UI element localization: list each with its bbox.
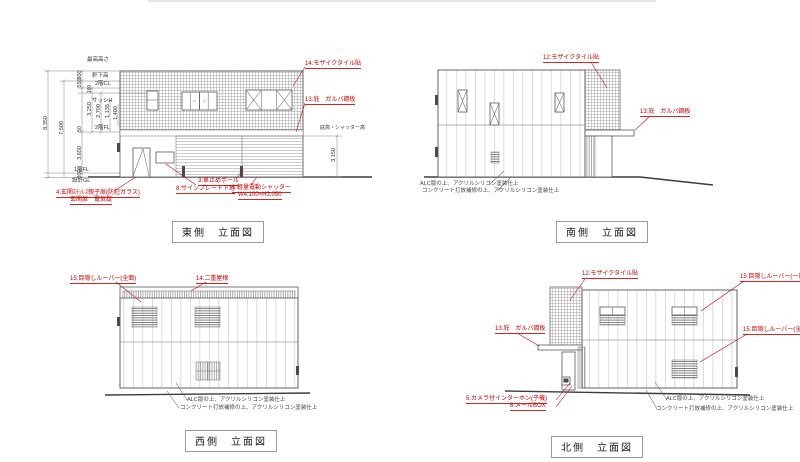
east-level-2f-cl: 2階CL xyxy=(95,81,111,87)
north-elevation-title: 北側 立面図 xyxy=(551,436,643,458)
south-annotation-canopy: 13:庇 ガルバ鋼板 xyxy=(640,109,690,117)
east-level-eaves: 軒下高 xyxy=(92,73,109,79)
north-finish-note-concrete: コンクリート打放補修の上、アクリルシリコン塗装仕上 xyxy=(656,406,793,413)
north-annotation-canopy: 13:庇 ガルバ鋼板 xyxy=(495,326,545,334)
north-annotation-mosaic-tile: 12:モザイクタイル貼 xyxy=(582,271,638,279)
north-finish-note-alc: ALC版の上、アクリルシリコン塗装仕上 xyxy=(666,396,764,403)
east-level-max-height: 最高高さ xyxy=(87,57,109,63)
west-annotation-double-roof: 14:二重屋根 xyxy=(196,276,228,284)
south-annotation-mosaic-tile: 12:モザイクタイル貼 xyxy=(543,55,599,63)
east-dim-550: 550 xyxy=(77,63,83,103)
south-elevation-title: 南側 立面図 xyxy=(556,221,648,243)
north-annotation-louver-full: 15:目隠しルーバー(全面) xyxy=(743,327,800,335)
west-annotation-louver: 15:目隠しルーバー(全面) xyxy=(70,276,136,284)
east-dim-total: 8,350 xyxy=(43,103,49,143)
south-finish-note-concrete: コンクリート打放補修の上、アクリルシリコン塗装仕上 xyxy=(422,188,559,195)
north-annotation-mailbox: 6:メールBOX xyxy=(510,403,546,411)
east-annotation-canopy: 13:庇 ガルバ鋼板 xyxy=(305,97,355,105)
east-annotation-sign-plate: 8:サインプレート下地 xyxy=(176,186,235,194)
elevation-sheet: 最高高さ 軒下高 2階CL サッシH 2階FL 1階FL 設計GL 庇高・シャッ… xyxy=(0,0,800,462)
east-level-canopy-shutter: 庇高・シャッター高 xyxy=(320,125,365,131)
east-dim-300: 300 xyxy=(77,154,83,194)
west-finish-note-alc: ALC版の上、アクリルシリコン塗装仕上 xyxy=(187,397,285,404)
south-finish-note-alc: ALC版の上、アクリルシリコン塗装仕上 xyxy=(420,181,518,188)
west-elevation-linework xyxy=(105,282,310,408)
west-elevation-title: 西側 立面図 xyxy=(185,430,277,452)
east-dim-2700: 2,700 xyxy=(96,91,102,131)
east-dim-1400: 1,400 xyxy=(113,93,119,133)
east-dim-3150: 3,150 xyxy=(331,135,337,175)
east-dim-upper: 7,500 xyxy=(59,108,65,148)
north-elevation-linework xyxy=(505,279,750,409)
west-finish-note-concrete: コンクリート打放補修の上、アクリルシリコン塗装仕上 xyxy=(180,405,317,412)
east-annotation-entrance-lock: 玄関扉 電気錠 xyxy=(70,197,112,205)
south-elevation-linework xyxy=(424,62,713,191)
east-elevation-title: 東側 立面図 xyxy=(172,221,264,243)
north-annotation-louver-partial: 15:目隠しルーバー(一部) xyxy=(740,274,800,282)
east-dim-3250: 3,250 xyxy=(87,89,93,129)
east-dim-1135: 1,135 xyxy=(105,91,111,131)
east-annotation-shutter-size: W4,100×H3,050 xyxy=(238,192,282,200)
elevation-linework xyxy=(0,0,800,462)
east-annotation-mosaic-tile: 14:モザイクタイル貼 xyxy=(305,61,361,69)
